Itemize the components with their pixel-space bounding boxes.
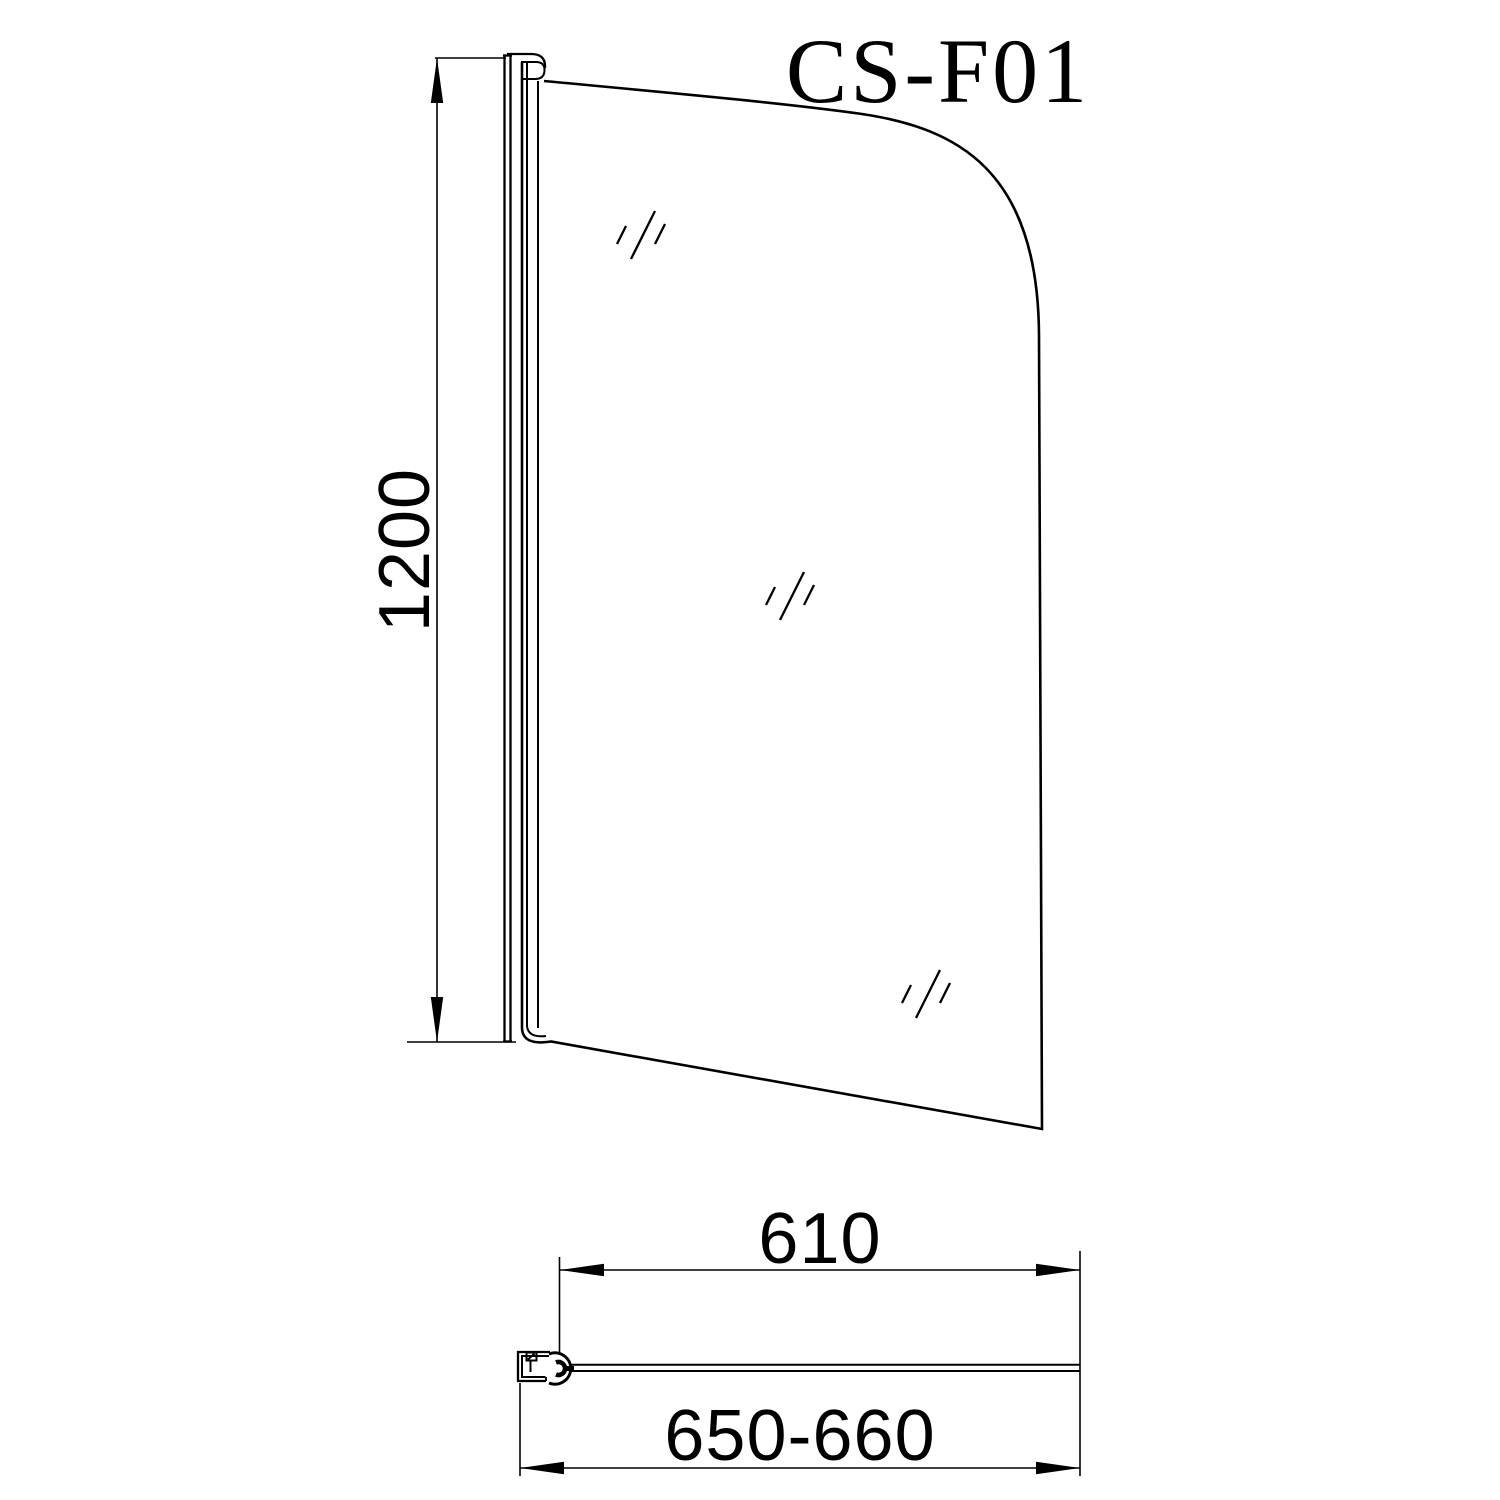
technical-drawing: 1200 (0, 0, 1500, 1500)
overall-width-dimension-label: 650-660 (664, 1396, 935, 1476)
model-label: CS-F01 (786, 20, 1090, 122)
glass-width-dimension-label: 610 (758, 1199, 881, 1279)
drawing-sheet: 1200 (0, 0, 1500, 1500)
canvas-background (0, 0, 1500, 1500)
height-dimension-label: 1200 (365, 468, 445, 632)
